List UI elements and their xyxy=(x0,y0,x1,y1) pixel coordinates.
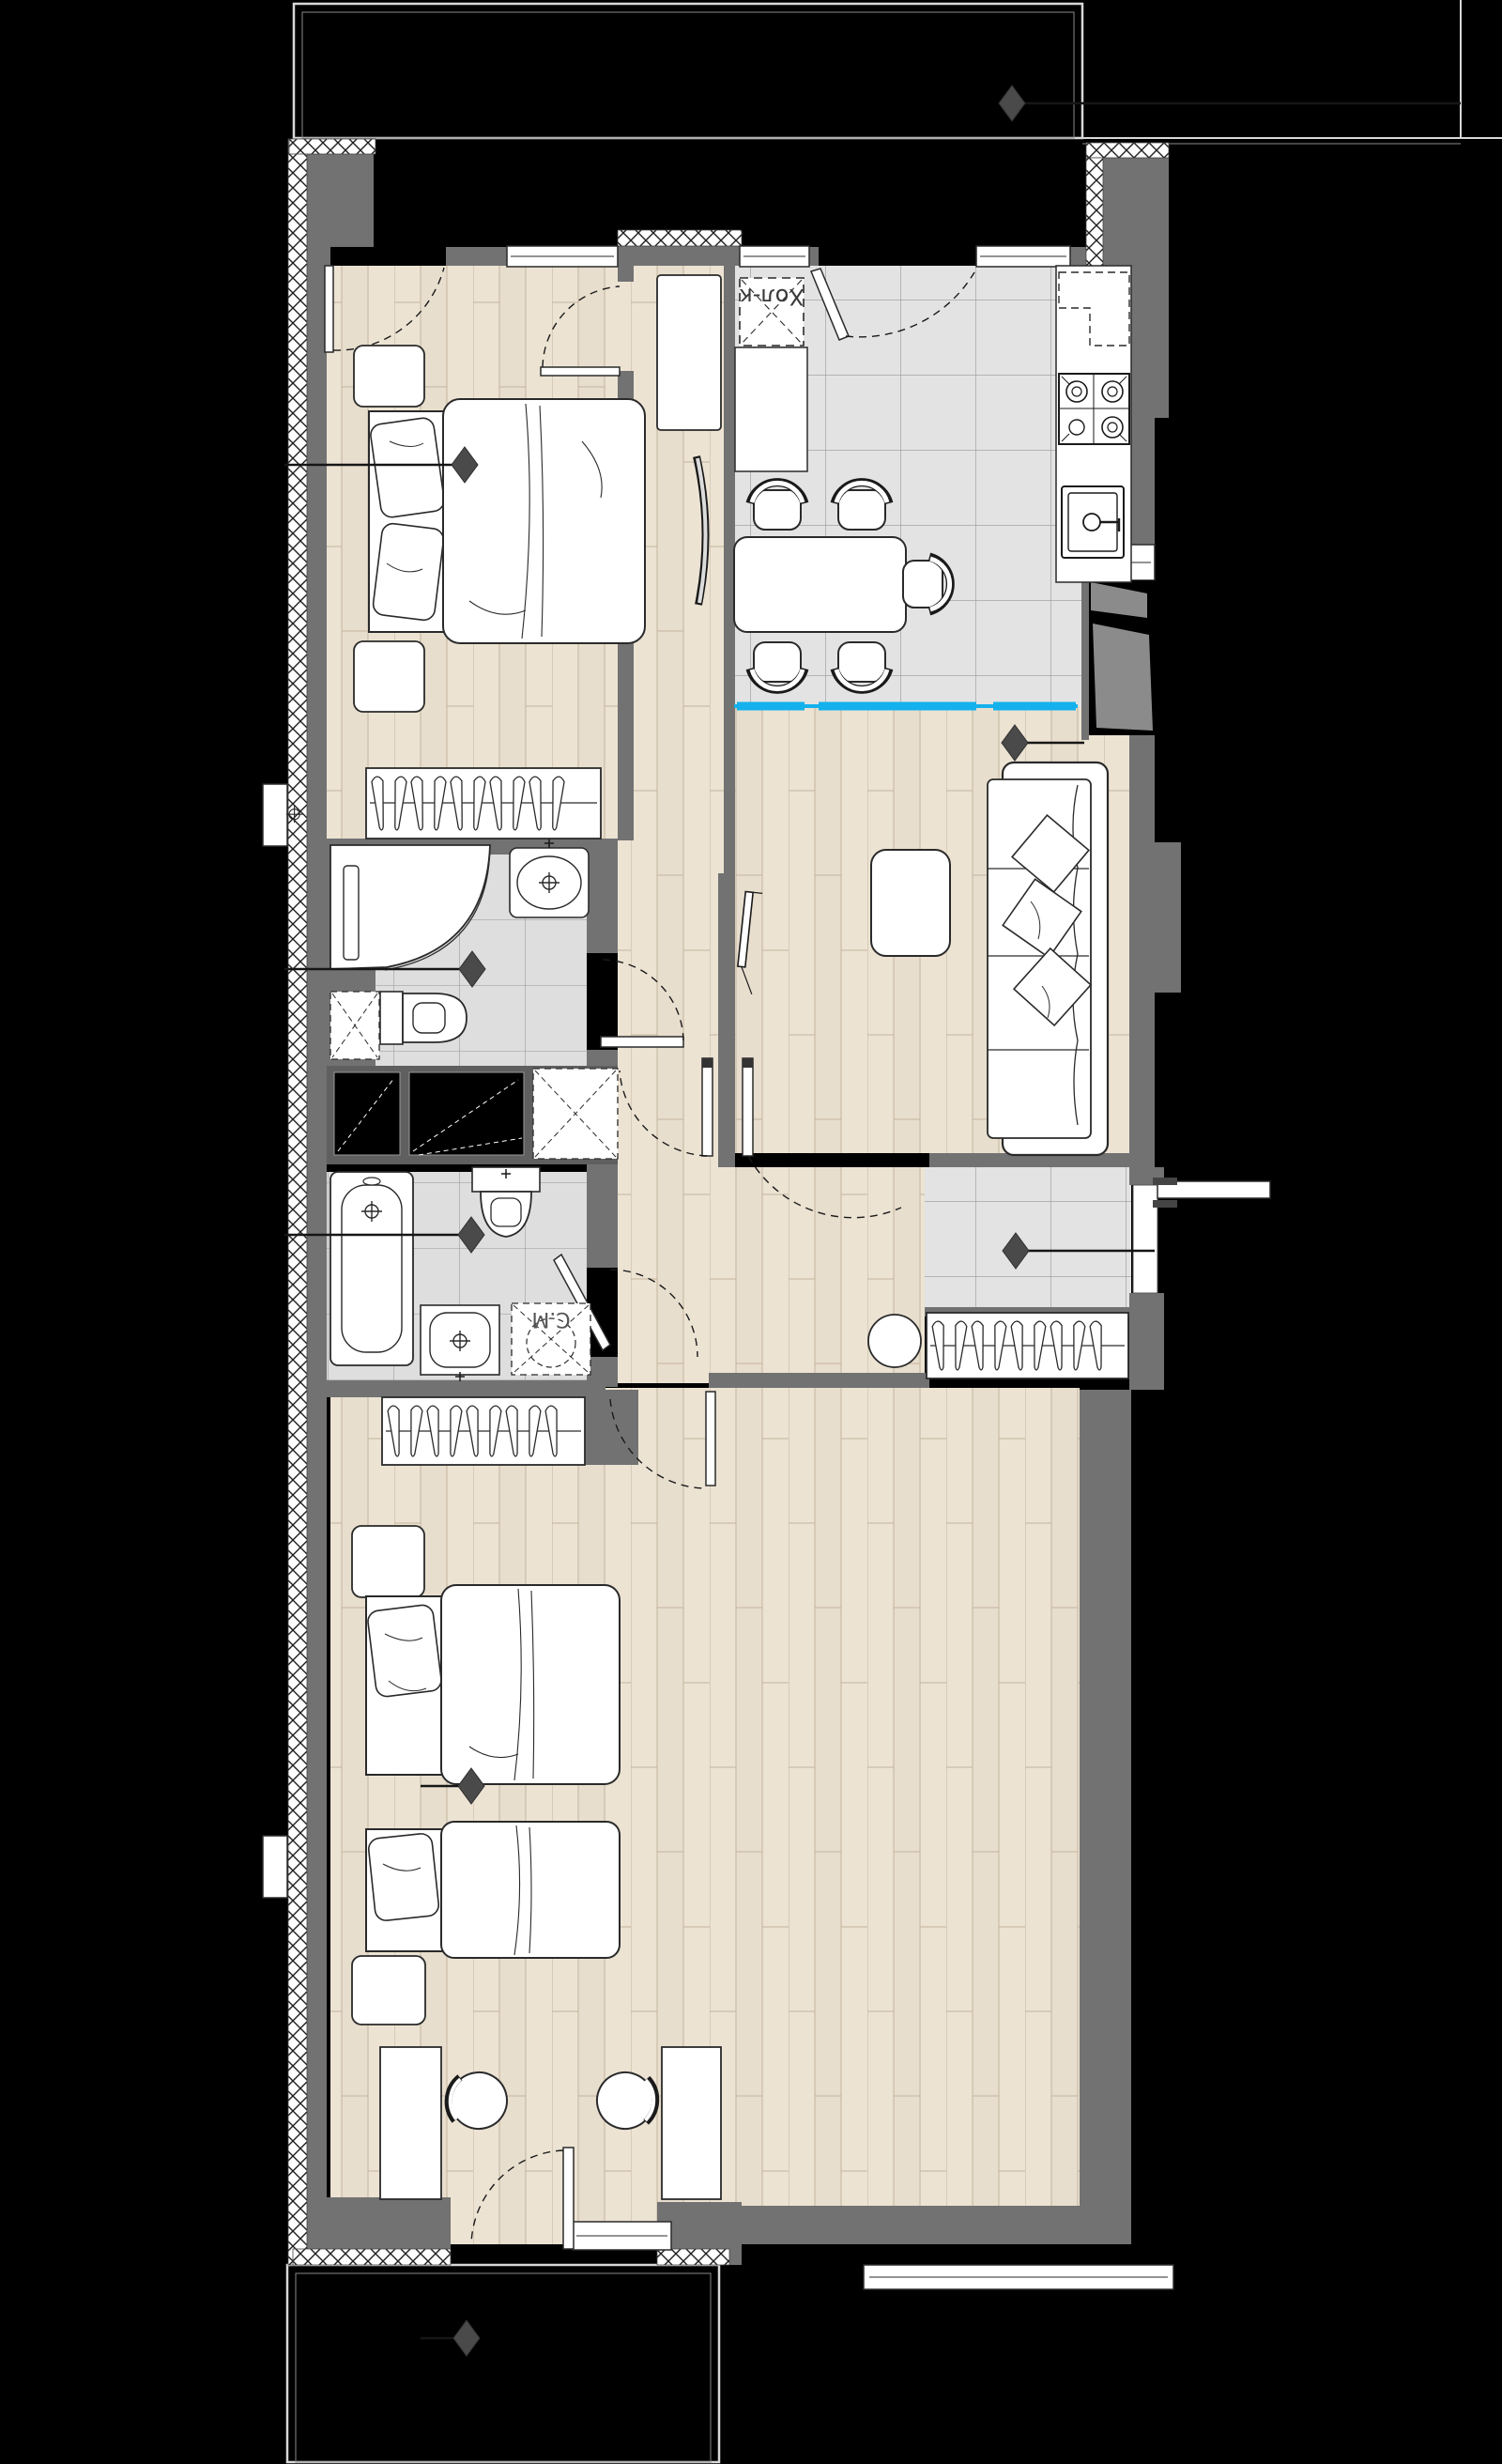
sofa xyxy=(988,762,1108,1155)
pillow xyxy=(367,1604,443,1698)
single-bed-2 xyxy=(366,1822,620,1958)
kitchen-counter-left xyxy=(735,347,807,471)
single-bed-1 xyxy=(366,1585,620,1784)
sill-left-wall-2 xyxy=(263,1836,287,1898)
wall-hall-stub xyxy=(718,873,735,1167)
window-bedroom-2 xyxy=(573,2222,671,2250)
dining-chair xyxy=(835,483,889,530)
floor-plan-canvas: Хол-к С.М xyxy=(0,0,1502,2464)
dining-chair xyxy=(750,483,805,530)
nightstand xyxy=(354,346,424,407)
washbasin-bath xyxy=(421,1305,499,1381)
sill-left-wall-1 xyxy=(263,784,287,846)
washer-label: С.М xyxy=(531,1307,570,1331)
nightstand xyxy=(354,641,424,712)
kitchen-sink xyxy=(1062,486,1124,558)
entry-closet xyxy=(927,1313,1128,1378)
wall-living-right xyxy=(1129,735,1155,1167)
floor-plan-drawing: Хол-к С.М xyxy=(0,0,1502,2464)
wardrobe-bedroom-2 xyxy=(382,1397,585,1465)
wall-bedroom-2-top xyxy=(306,1380,605,1397)
wall-exterior-pier xyxy=(1155,842,1181,993)
floor-entry-hall xyxy=(925,1167,1131,1310)
blanket xyxy=(443,399,645,643)
shaft-zone xyxy=(327,1066,618,1164)
window-bedroom-1 xyxy=(507,246,618,267)
coffee-table xyxy=(871,850,950,956)
wall-bedroom-2-bottom-right xyxy=(742,2206,1096,2244)
double-bed xyxy=(369,399,645,643)
wall-bedroom-2-right xyxy=(1080,1390,1131,2244)
window-kitchen-left xyxy=(740,246,809,267)
blanket xyxy=(441,1585,620,1784)
nightstand xyxy=(352,1526,424,1597)
window-kitchen-right xyxy=(976,246,1070,267)
stove xyxy=(1059,374,1129,444)
hall-cabinet xyxy=(657,275,721,430)
door-entrance xyxy=(1133,1178,1270,1293)
wardrobe-bedroom-1 xyxy=(366,768,601,839)
bathtub xyxy=(330,1172,413,1365)
balcony-door-recess xyxy=(1089,580,1155,735)
desk-left xyxy=(380,2047,441,2199)
wall-entry-right xyxy=(1129,1293,1164,1390)
desk-right xyxy=(662,2047,721,2199)
balcony-top xyxy=(294,0,1502,144)
wall-left-spine xyxy=(306,154,327,2249)
dining-table xyxy=(734,537,906,632)
pillow xyxy=(369,417,445,518)
exterior-window-ledge xyxy=(864,2265,1173,2289)
pouf xyxy=(868,1315,921,1367)
pillow xyxy=(368,1833,440,1922)
washbasin-wc xyxy=(510,839,589,917)
nightstand xyxy=(352,1956,425,2025)
wall-kitchen-right xyxy=(1131,266,1155,545)
fridge-label: Хол-к xyxy=(739,284,805,310)
dining-chair xyxy=(903,557,950,611)
balcony-bottom xyxy=(287,2265,719,2462)
